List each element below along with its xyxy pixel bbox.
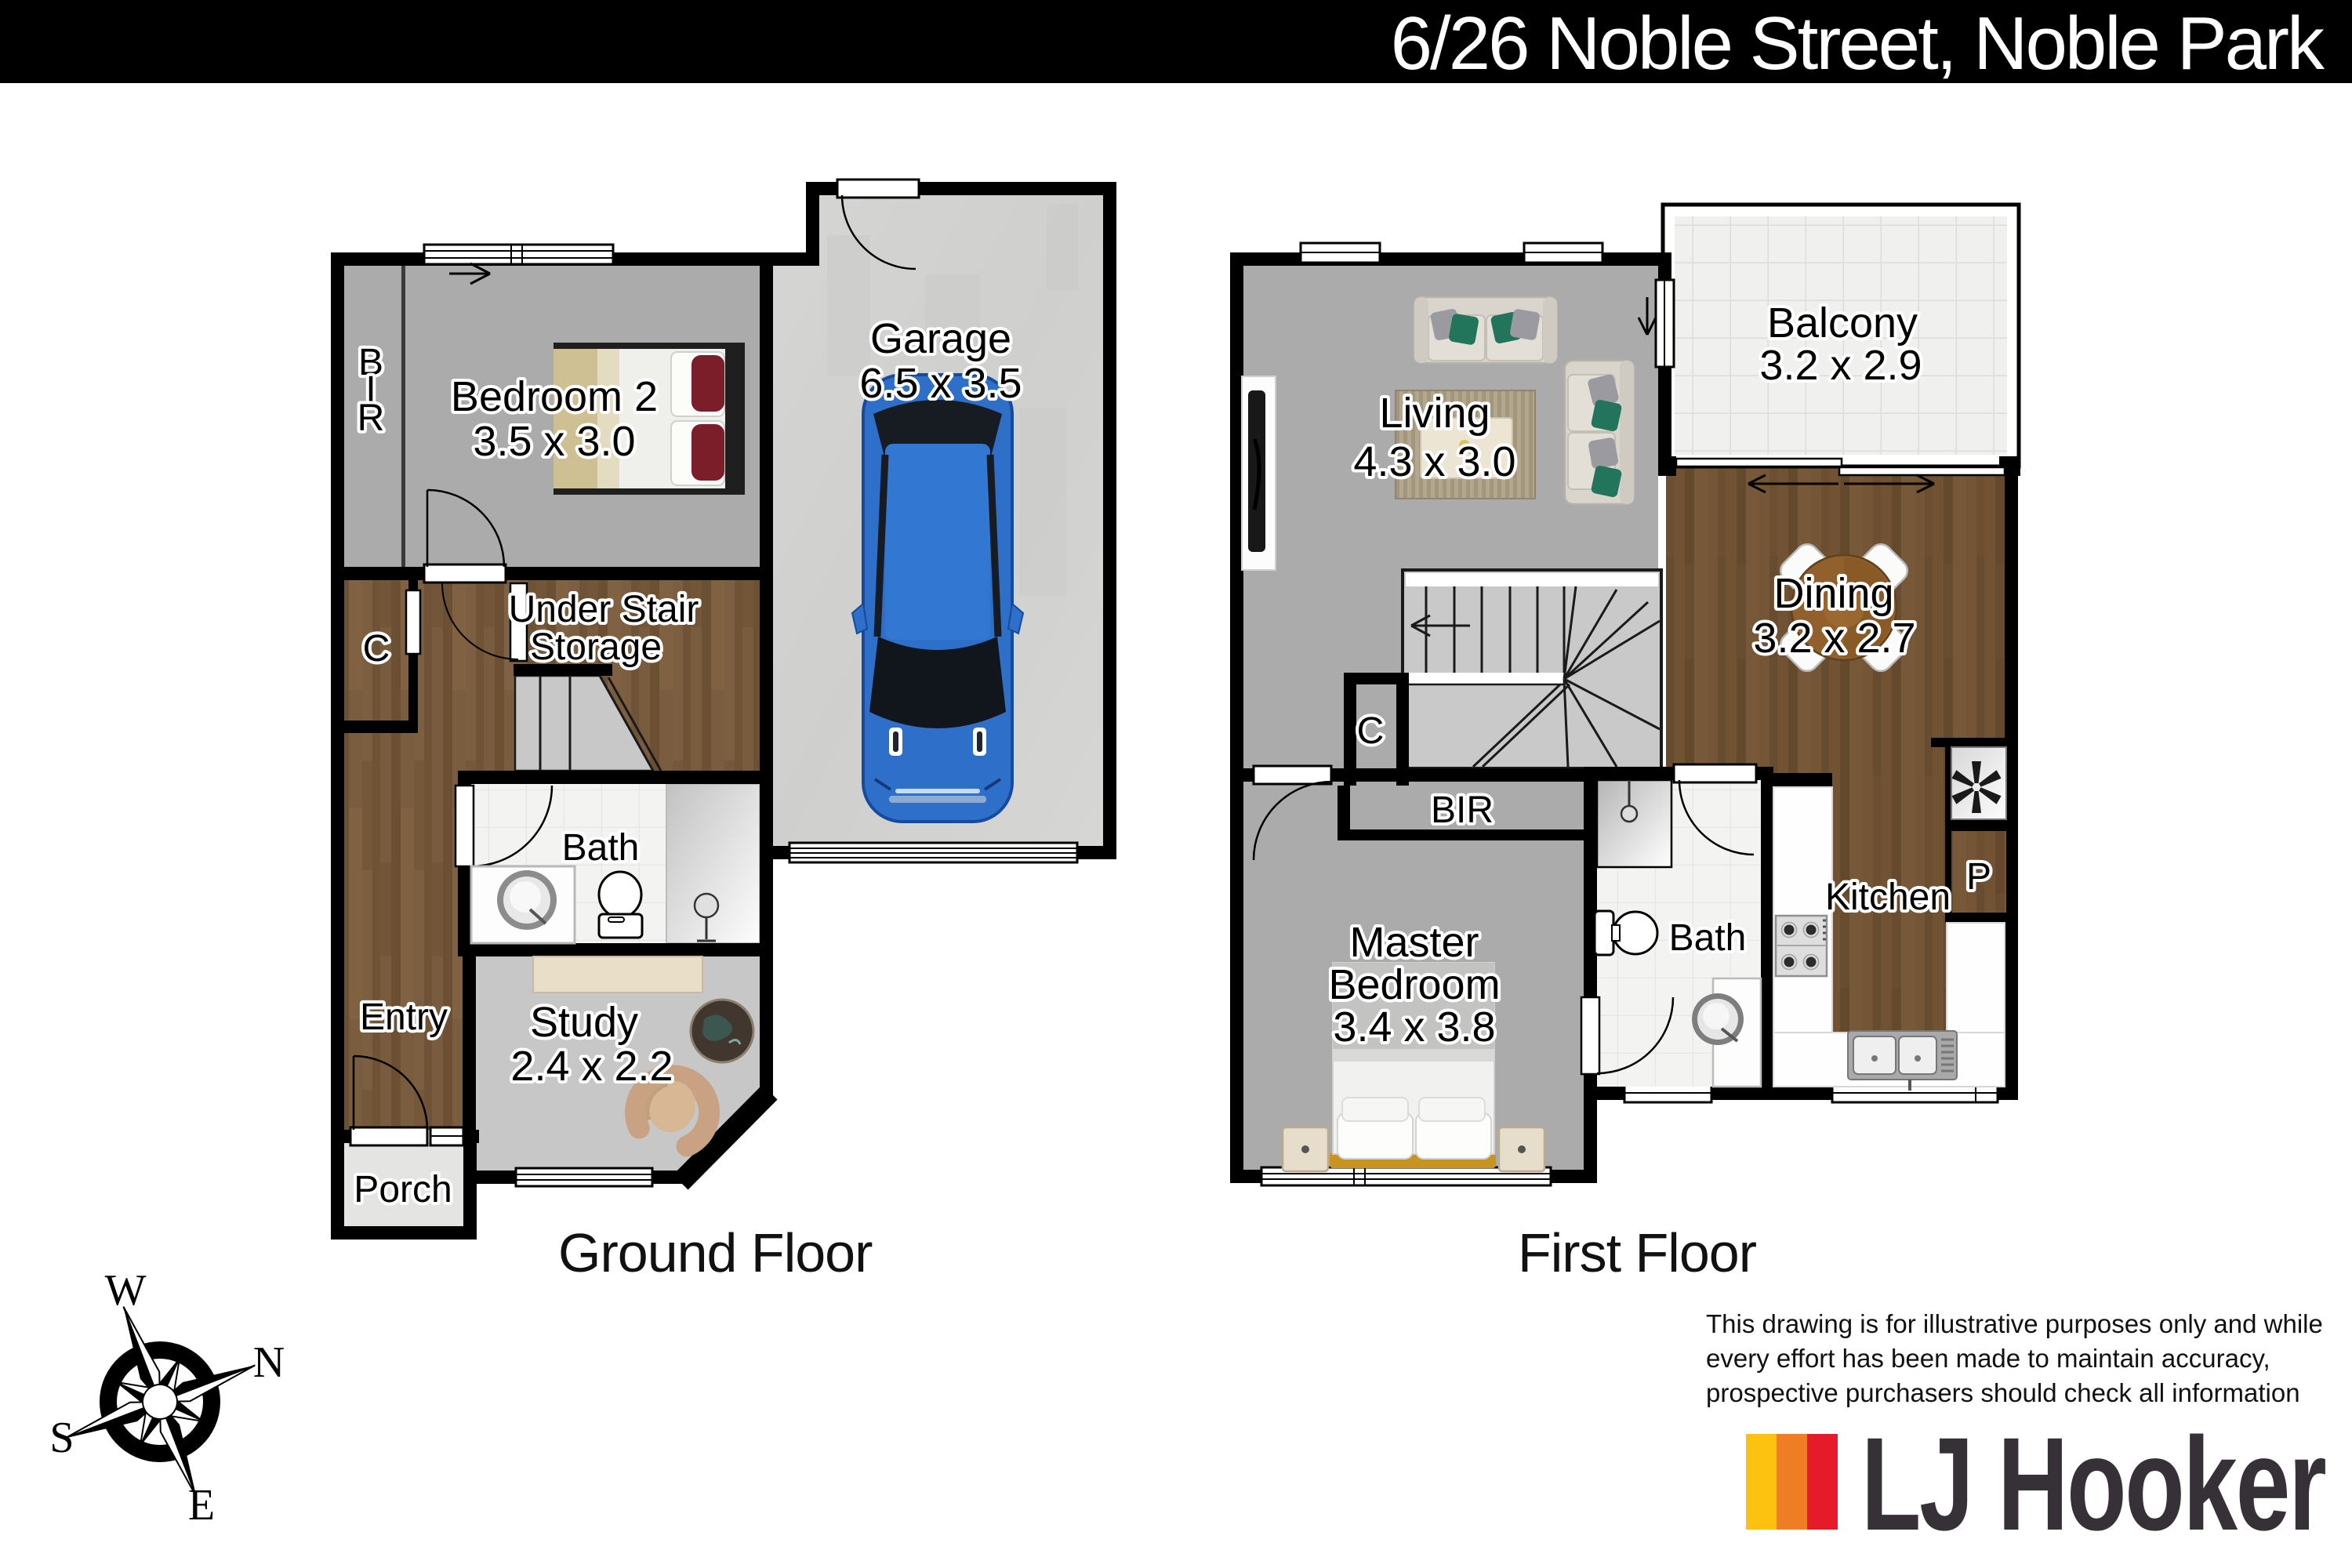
svg-text:Garage: Garage (870, 315, 1011, 362)
svg-text:Bedroom: Bedroom (1328, 961, 1500, 1008)
svg-text:S: S (49, 1414, 74, 1462)
svg-text:Entry: Entry (360, 996, 448, 1038)
svg-text:every effort has been made to: every effort has been made to maintain a… (1706, 1344, 2270, 1373)
svg-text:First Floor: First Floor (1518, 1222, 1757, 1283)
svg-text:Living: Living (1379, 390, 1490, 437)
svg-text:P: P (1966, 856, 1991, 898)
svg-text:prospective purchasers should: prospective purchasers should check all … (1706, 1378, 2300, 1407)
svg-text:3.4 x 3.8: 3.4 x 3.8 (1333, 1004, 1495, 1051)
svg-text:3.5 x 3.0: 3.5 x 3.0 (473, 418, 635, 465)
svg-text:6.5 x 3.5: 6.5 x 3.5 (859, 360, 1022, 407)
svg-text:Storage: Storage (530, 626, 662, 668)
svg-text:C: C (1357, 710, 1385, 752)
svg-text:Under Stair: Under Stair (509, 589, 699, 630)
svg-text:3.2 x 2.7: 3.2 x 2.7 (1753, 615, 1915, 662)
svg-text:4.3 x 3.0: 4.3 x 3.0 (1353, 438, 1515, 485)
svg-text:6/26 Noble Street, Noble Park: 6/26 Noble Street, Noble Park (1391, 2, 2325, 85)
svg-text:Porch: Porch (354, 1169, 452, 1210)
svg-text:W: W (105, 1266, 147, 1315)
svg-text:BIR: BIR (1431, 789, 1494, 831)
svg-text:R: R (358, 397, 385, 439)
svg-text:3.2 x 2.9: 3.2 x 2.9 (1759, 342, 1922, 389)
svg-text:Bath: Bath (562, 827, 640, 869)
svg-text:Master: Master (1349, 919, 1479, 966)
svg-text:LJ Hooker: LJ Hooker (1861, 1410, 2325, 1559)
svg-text:Dining: Dining (1773, 570, 1893, 617)
svg-text:N: N (253, 1338, 285, 1387)
svg-text:Balcony: Balcony (1767, 299, 1918, 347)
svg-text:Ground Floor: Ground Floor (558, 1222, 873, 1283)
svg-text:E: E (188, 1481, 215, 1530)
svg-text:C: C (363, 628, 390, 670)
svg-text:Kitchen: Kitchen (1825, 877, 1951, 918)
svg-text:This drawing is for illustrati: This drawing is for illustrative purpose… (1706, 1309, 2323, 1338)
svg-text:Study: Study (530, 999, 638, 1046)
svg-text:Bedroom 2: Bedroom 2 (451, 373, 658, 420)
svg-text:Bath: Bath (1669, 917, 1747, 959)
svg-text:2.4 x 2.2: 2.4 x 2.2 (510, 1043, 673, 1090)
